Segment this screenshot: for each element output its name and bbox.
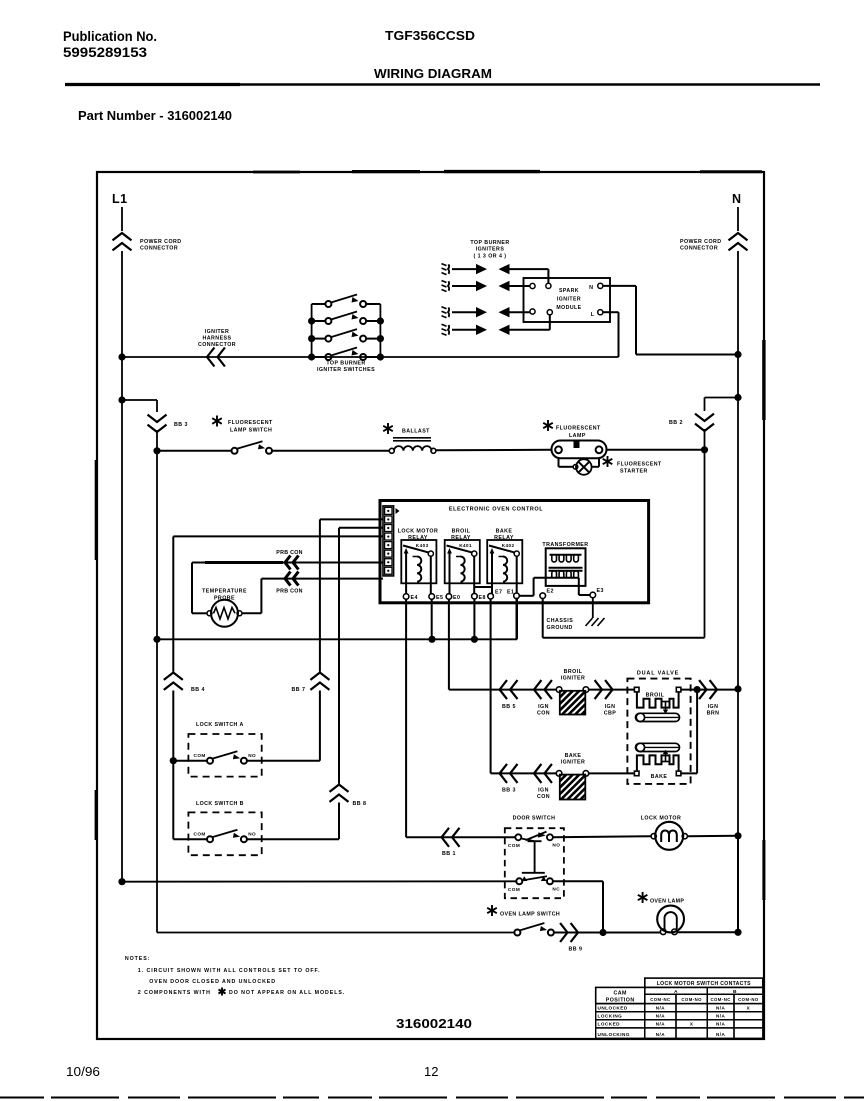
svg-text:BROIL: BROIL xyxy=(452,529,471,535)
svg-text:X: X xyxy=(747,1005,751,1010)
svg-text:BB 2: BB 2 xyxy=(669,420,683,426)
svg-text:L: L xyxy=(591,312,595,318)
svg-text:RELAY: RELAY xyxy=(494,535,514,541)
svg-text:NO: NO xyxy=(552,843,560,848)
svg-text:CONNECTOR: CONNECTOR xyxy=(680,246,718,252)
svg-text:BB 3: BB 3 xyxy=(502,788,516,794)
svg-text:LOCK MOTOR: LOCK MOTOR xyxy=(398,529,439,535)
svg-text:POWER CORD: POWER CORD xyxy=(680,239,722,245)
svg-text:TGF356CCSD: TGF356CCSD xyxy=(385,28,475,43)
svg-text:LOCKING: LOCKING xyxy=(598,1014,623,1019)
svg-text:BB 9: BB 9 xyxy=(569,947,583,953)
svg-text:CONNECTOR: CONNECTOR xyxy=(198,342,236,348)
svg-text:LAMP SWITCH: LAMP SWITCH xyxy=(230,428,272,434)
svg-text:IGN: IGN xyxy=(538,788,549,794)
svg-text:K403: K403 xyxy=(416,543,429,548)
svg-text:K402: K402 xyxy=(502,543,515,548)
svg-text:E8: E8 xyxy=(479,595,486,601)
svg-text:N/A: N/A xyxy=(656,1032,665,1037)
svg-text:DUAL VALVE: DUAL VALVE xyxy=(637,671,679,677)
svg-text:OVEN LAMP: OVEN LAMP xyxy=(650,899,684,905)
svg-text:( 1 3 OR 4 ): ( 1 3 OR 4 ) xyxy=(473,254,506,260)
svg-text:FLUORESCENT: FLUORESCENT xyxy=(617,462,662,468)
svg-text:UNLOCKED: UNLOCKED xyxy=(598,1006,628,1011)
svg-text:IGN: IGN xyxy=(538,704,549,710)
svg-text:CONNECTOR: CONNECTOR xyxy=(140,246,178,252)
svg-text:LOCK MOTOR SWITCH CONTACTS: LOCK MOTOR SWITCH CONTACTS xyxy=(657,981,751,987)
svg-text:GROUND: GROUND xyxy=(547,625,573,631)
svg-text:NOTES:: NOTES: xyxy=(125,956,150,962)
svg-text:BB 5: BB 5 xyxy=(502,704,516,710)
svg-text:LOCKED: LOCKED xyxy=(598,1022,621,1027)
svg-text:Publication No.: Publication No. xyxy=(63,29,157,44)
svg-text:LOCK MOTOR: LOCK MOTOR xyxy=(641,816,682,822)
svg-text:N/A: N/A xyxy=(716,1022,725,1027)
svg-text:TRANSFORMER: TRANSFORMER xyxy=(542,542,588,548)
svg-text:N/A: N/A xyxy=(656,1022,665,1027)
svg-text:5995289153: 5995289153 xyxy=(63,45,147,60)
svg-text:10/96: 10/96 xyxy=(66,1064,100,1079)
svg-text:HARNESS: HARNESS xyxy=(202,336,231,342)
svg-text:E4: E4 xyxy=(411,595,418,601)
svg-text:CHASSIS: CHASSIS xyxy=(547,618,574,624)
svg-text:COM: COM xyxy=(194,832,206,837)
svg-text:CBP: CBP xyxy=(604,711,617,717)
svg-text:2 COMPONENTS WITH: 2 COMPONENTS WITH xyxy=(138,990,211,996)
svg-text:NO: NO xyxy=(248,753,256,758)
svg-text:STARTER: STARTER xyxy=(620,469,648,475)
svg-text:N: N xyxy=(589,285,593,291)
svg-text:BRN: BRN xyxy=(707,711,720,717)
svg-text:CAM: CAM xyxy=(613,991,627,997)
svg-text:IGNITER: IGNITER xyxy=(561,760,586,766)
svg-text:N/A: N/A xyxy=(716,1005,725,1010)
svg-text:IGNITERS: IGNITERS xyxy=(476,247,505,253)
svg-text:N/A: N/A xyxy=(656,1013,665,1018)
svg-text:PRB CON: PRB CON xyxy=(276,589,303,595)
svg-text:FLUORESCENT: FLUORESCENT xyxy=(556,426,601,432)
svg-text:FLUORESCENT: FLUORESCENT xyxy=(228,420,273,426)
svg-text:DO NOT APPEAR ON ALL MODELS.: DO NOT APPEAR ON ALL MODELS. xyxy=(229,990,345,996)
svg-text:12: 12 xyxy=(424,1064,438,1079)
svg-text:316002140: 316002140 xyxy=(396,1017,472,1031)
svg-text:X: X xyxy=(690,1022,694,1027)
svg-text:MODULE: MODULE xyxy=(556,305,581,311)
svg-text:COM-NO: COM-NO xyxy=(681,997,702,1002)
svg-text:IGNITER: IGNITER xyxy=(557,297,581,303)
svg-text:NC: NC xyxy=(552,887,560,892)
svg-text:BROIL: BROIL xyxy=(646,693,665,699)
svg-text:TOP BURNER: TOP BURNER xyxy=(326,361,365,367)
svg-text:COM: COM xyxy=(508,887,520,892)
svg-text:UNLOCKING: UNLOCKING xyxy=(598,1032,630,1037)
svg-text:LOCK SWITCH A: LOCK SWITCH A xyxy=(196,722,244,728)
svg-text:BALLAST: BALLAST xyxy=(402,429,430,435)
svg-text:CON: CON xyxy=(537,711,550,717)
svg-text:COM: COM xyxy=(508,843,520,848)
svg-text:BB 7: BB 7 xyxy=(292,687,306,693)
svg-text:CON: CON xyxy=(537,794,550,800)
svg-text:POWER CORD: POWER CORD xyxy=(140,239,182,245)
svg-text:OVEN LAMP SWITCH: OVEN LAMP SWITCH xyxy=(500,912,560,918)
svg-text:COM-NC: COM-NC xyxy=(650,997,670,1002)
svg-text:COM: COM xyxy=(194,753,206,758)
svg-text:Part Number - 316002140: Part Number - 316002140 xyxy=(78,108,232,123)
svg-text:OVEN DOOR CLOSED AND UNLOCKED: OVEN DOOR CLOSED AND UNLOCKED xyxy=(149,979,276,985)
svg-text:IGN: IGN xyxy=(708,704,719,710)
svg-text:E0: E0 xyxy=(453,595,460,601)
svg-text:IGNITER: IGNITER xyxy=(205,329,230,335)
svg-text:POSITION: POSITION xyxy=(606,998,635,1004)
svg-text:L1: L1 xyxy=(112,192,128,206)
svg-text:E2: E2 xyxy=(547,589,554,595)
svg-text:BB 1: BB 1 xyxy=(442,851,456,857)
svg-text:N: N xyxy=(732,192,741,206)
svg-text:E3: E3 xyxy=(597,588,604,594)
svg-text:RELAY: RELAY xyxy=(451,535,471,541)
svg-text:TEMPERATURE: TEMPERATURE xyxy=(202,589,247,595)
svg-text:N/A: N/A xyxy=(656,1005,665,1010)
svg-text:N/A: N/A xyxy=(716,1013,725,1018)
svg-text:NO: NO xyxy=(248,832,256,837)
svg-text:BB 3: BB 3 xyxy=(174,422,188,428)
svg-text:COM-NC: COM-NC xyxy=(710,997,730,1002)
svg-text:1. CIRCUIT SHOWN WITH ALL CON: 1. CIRCUIT SHOWN WITH ALL CONTROLS SET T… xyxy=(138,968,321,974)
svg-text:BAKE: BAKE xyxy=(651,774,668,780)
svg-text:K401: K401 xyxy=(459,543,472,548)
svg-text:E1: E1 xyxy=(507,590,514,596)
svg-text:LOCK SWITCH B: LOCK SWITCH B xyxy=(196,801,244,807)
svg-text:BAKE: BAKE xyxy=(565,753,582,759)
svg-text:E5: E5 xyxy=(436,595,443,601)
svg-text:LAMP: LAMP xyxy=(569,433,586,439)
svg-text:COM-NO: COM-NO xyxy=(738,997,759,1002)
svg-text:PRB CON: PRB CON xyxy=(276,550,303,556)
svg-text:ELECTRONIC OVEN CONTROL: ELECTRONIC OVEN CONTROL xyxy=(449,507,543,513)
svg-text:IGNITER SWITCHES: IGNITER SWITCHES xyxy=(317,367,375,373)
svg-text:WIRING DIAGRAM: WIRING DIAGRAM xyxy=(374,66,492,81)
svg-text:N/A: N/A xyxy=(716,1032,725,1037)
svg-text:RELAY: RELAY xyxy=(408,535,428,541)
svg-text:BB 4: BB 4 xyxy=(191,687,205,693)
svg-text:DOOR SWITCH: DOOR SWITCH xyxy=(513,816,556,822)
svg-text:BAKE: BAKE xyxy=(496,529,513,535)
svg-text:BROIL: BROIL xyxy=(564,669,583,675)
svg-text:E7: E7 xyxy=(495,590,502,596)
svg-text:SPARK: SPARK xyxy=(559,288,579,294)
svg-text:IGNITER: IGNITER xyxy=(561,676,586,682)
svg-text:BB 8: BB 8 xyxy=(353,801,367,807)
svg-text:IGN: IGN xyxy=(605,704,616,710)
svg-text:TOP BURNER: TOP BURNER xyxy=(470,240,509,246)
